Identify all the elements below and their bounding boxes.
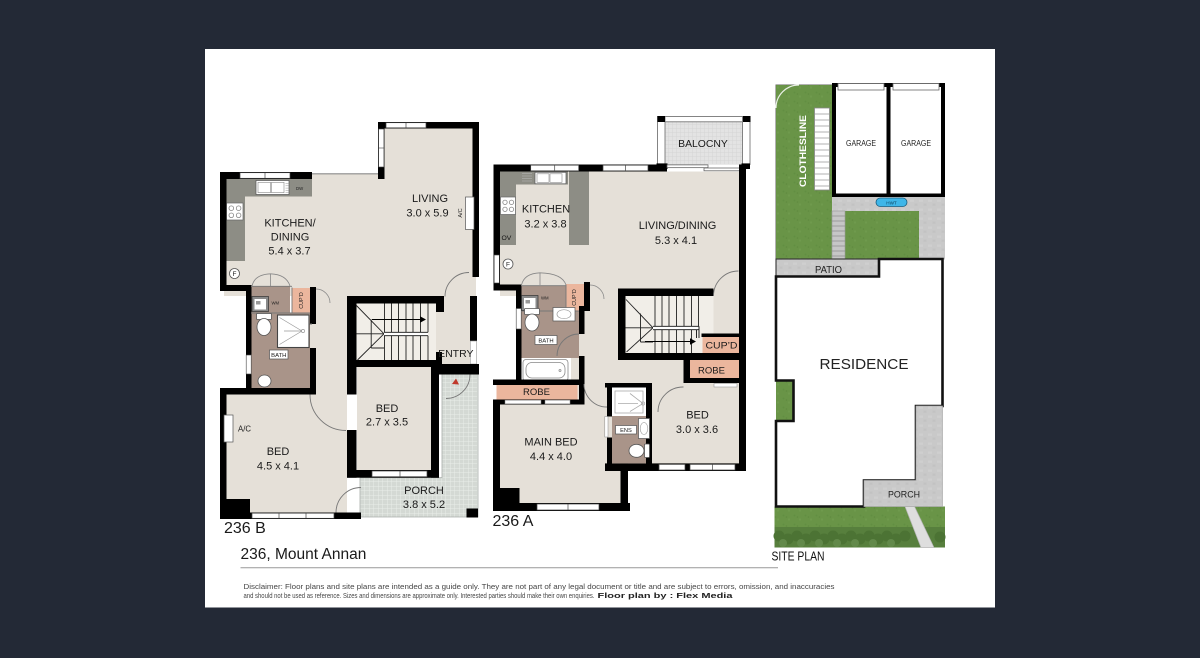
svg-text:A/C: A/C <box>238 425 251 434</box>
svg-text:PORCH: PORCH <box>404 485 444 497</box>
svg-text:2.7 x 3.5: 2.7 x 3.5 <box>366 417 408 429</box>
svg-text:CUP’D: CUP’D <box>299 292 305 309</box>
svg-text:BATH: BATH <box>538 339 553 345</box>
svg-text:CUP’D: CUP’D <box>572 289 578 306</box>
svg-text:HWT: HWT <box>886 201 897 206</box>
svg-text:SITE PLAN: SITE PLAN <box>772 549 825 564</box>
svg-text:DINING: DINING <box>271 232 310 244</box>
svg-text:F: F <box>506 262 510 269</box>
svg-text:BATH: BATH <box>271 353 286 359</box>
svg-text:KITCHEN/: KITCHEN/ <box>264 218 316 230</box>
svg-text:ENS: ENS <box>620 428 632 434</box>
svg-text:5.4 x 3.7: 5.4 x 3.7 <box>268 246 310 258</box>
svg-text:KITCHEN: KITCHEN <box>522 204 570 216</box>
svg-text:BED: BED <box>376 403 399 415</box>
svg-text:Floor plan by : Flex Media: Floor plan by : Flex Media <box>598 591 734 600</box>
svg-text:ROBE: ROBE <box>698 366 725 377</box>
svg-text:BALOCNY: BALOCNY <box>678 139 728 150</box>
svg-text:3.0 x 5.9: 3.0 x 5.9 <box>406 208 448 220</box>
svg-text:GARAGE: GARAGE <box>846 139 876 148</box>
svg-text:CUP’D: CUP’D <box>706 341 738 352</box>
svg-text:ENTRY: ENTRY <box>438 348 473 360</box>
svg-text:236, Mount Annan: 236, Mount Annan <box>241 546 367 563</box>
svg-text:F: F <box>233 271 237 278</box>
svg-text:RESIDENCE: RESIDENCE <box>820 357 909 373</box>
svg-text:4.5 x 4.1: 4.5 x 4.1 <box>257 460 299 472</box>
svg-text:A/C: A/C <box>458 208 464 217</box>
svg-text:PORCH: PORCH <box>888 489 920 500</box>
svg-text:DW: DW <box>296 186 304 191</box>
svg-text:BED: BED <box>686 410 709 422</box>
svg-text:LIVING/DINING: LIVING/DINING <box>639 220 717 232</box>
svg-text:BED: BED <box>267 446 290 458</box>
svg-text:3.8 x 5.2: 3.8 x 5.2 <box>403 499 445 511</box>
svg-text:3.2 x 3.8: 3.2 x 3.8 <box>524 219 566 231</box>
svg-text:WM: WM <box>541 296 549 301</box>
svg-text:236 B: 236 B <box>224 520 266 537</box>
svg-text:3.0 x 3.6: 3.0 x 3.6 <box>676 424 718 436</box>
svg-text:CLOTHESLINE: CLOTHESLINE <box>798 115 808 187</box>
svg-text:5.3 x 4.1: 5.3 x 4.1 <box>655 235 697 247</box>
svg-text:GARAGE: GARAGE <box>901 139 931 148</box>
svg-text:LIVING: LIVING <box>412 193 448 205</box>
svg-text:OV: OV <box>502 235 512 242</box>
svg-text:Disclaimer: Floor plans and si: Disclaimer: Floor plans and site plans a… <box>244 582 835 591</box>
svg-text:236 A: 236 A <box>493 513 534 530</box>
svg-text:ROBE: ROBE <box>523 387 550 398</box>
svg-text:WM: WM <box>272 301 280 306</box>
svg-text:MAIN BED: MAIN BED <box>524 437 577 449</box>
svg-text:4.4 x 4.0: 4.4 x 4.0 <box>530 451 572 463</box>
svg-text:PATIO: PATIO <box>815 264 842 276</box>
svg-text:and should not be used as refe: and should not be used as reference. Siz… <box>244 591 595 600</box>
